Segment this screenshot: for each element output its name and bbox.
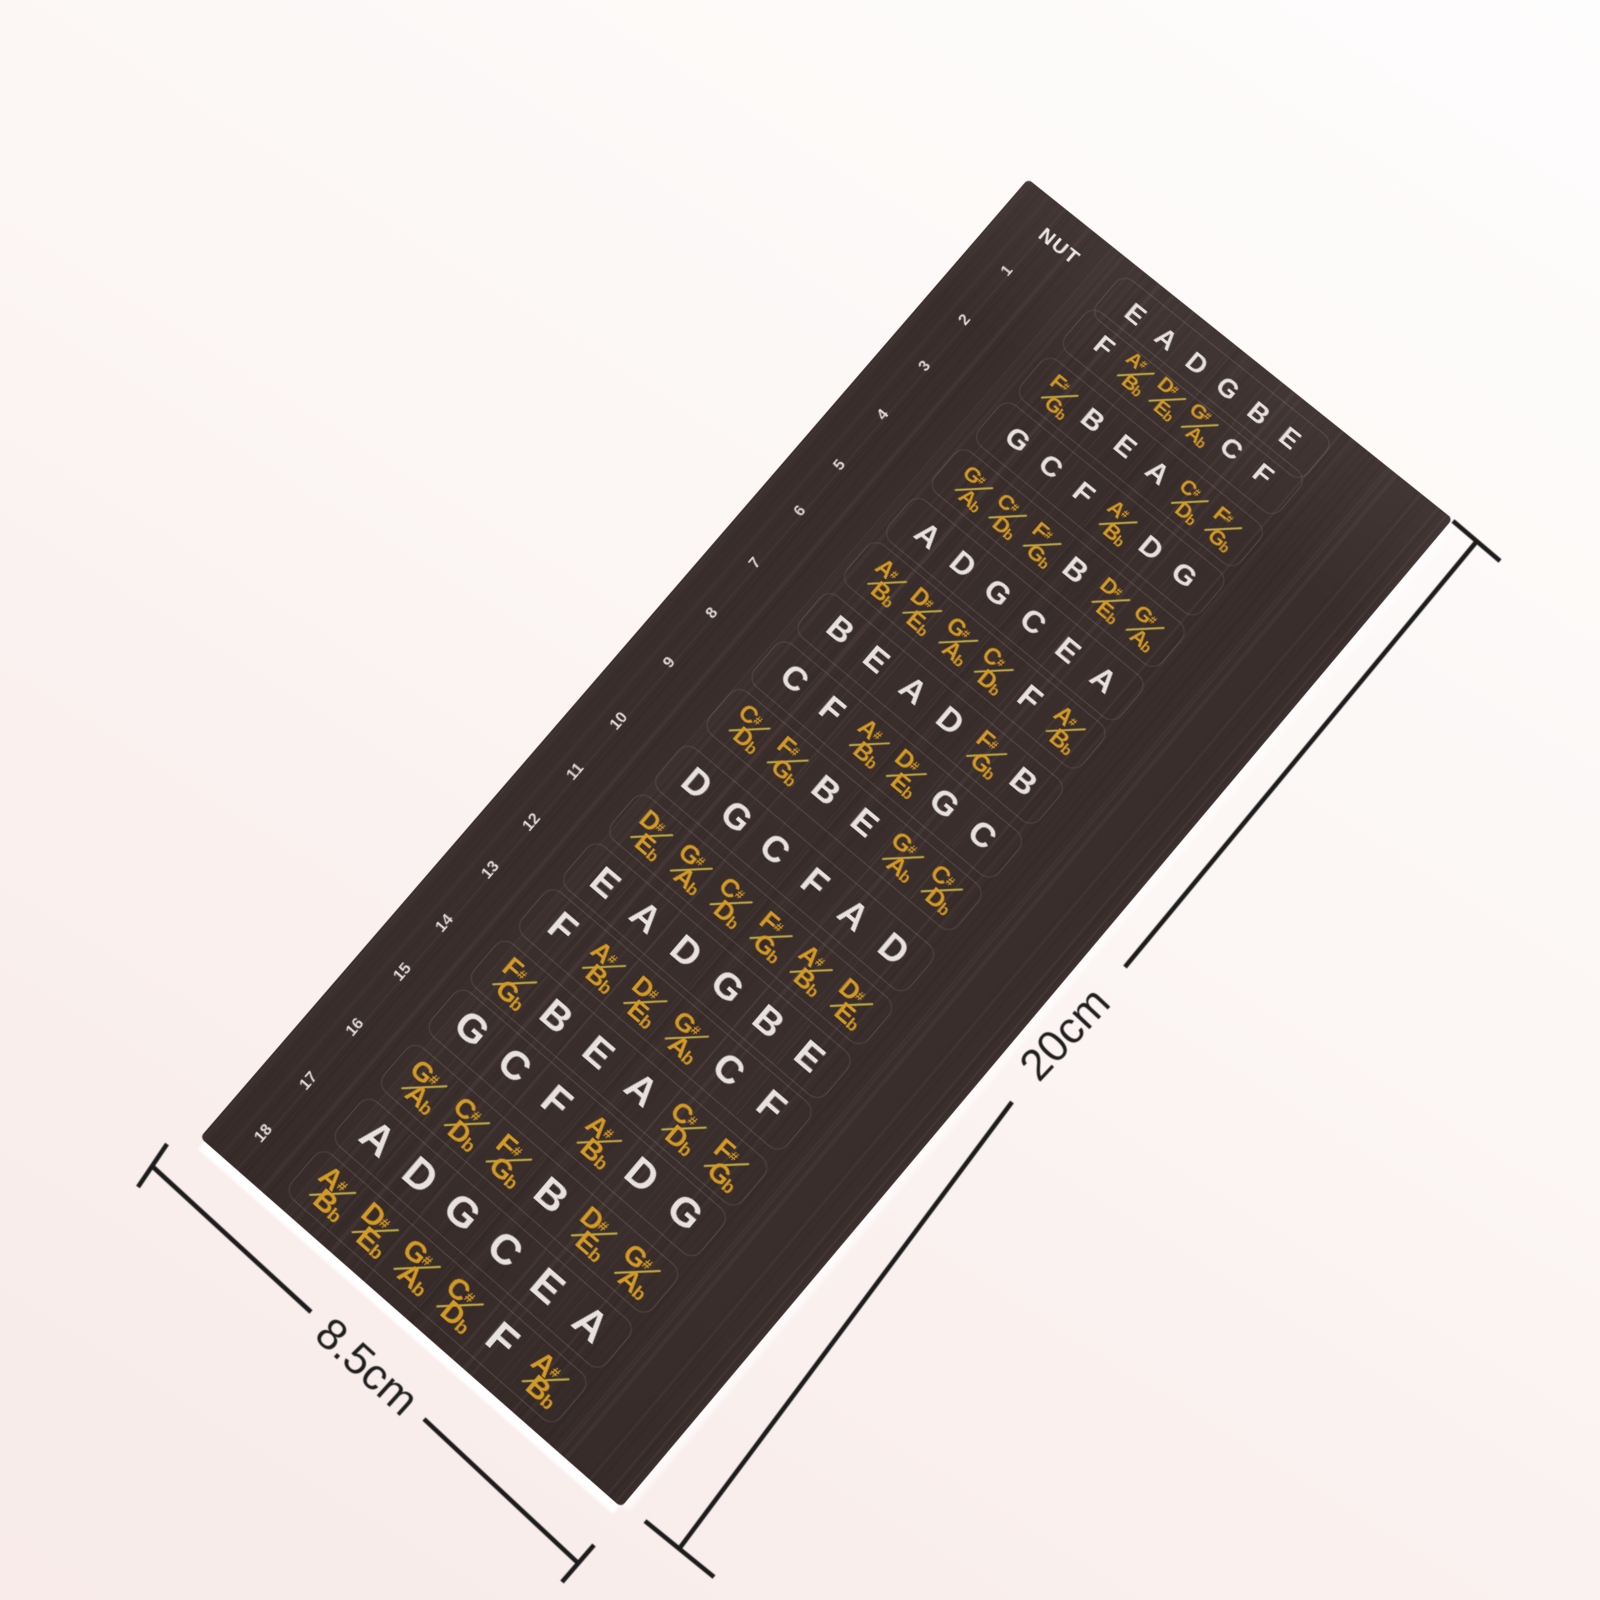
svg-text:20cm: 20cm — [1010, 978, 1119, 1090]
svg-text:8.5cm: 8.5cm — [306, 1309, 428, 1426]
